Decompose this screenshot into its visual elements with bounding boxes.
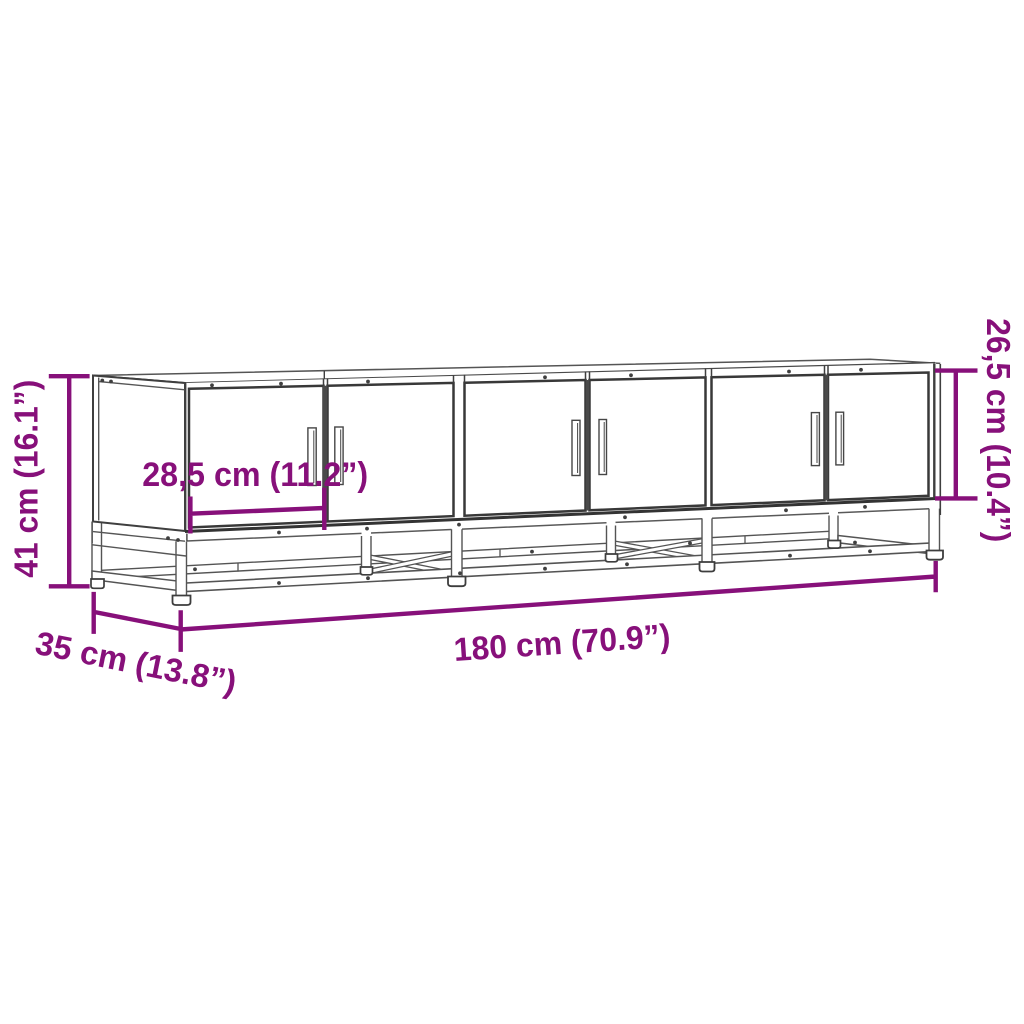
svg-text:41 cm (16.1”): 41 cm (16.1”) — [8, 380, 45, 578]
svg-text:26,5 cm (10.4”): 26,5 cm (10.4”) — [980, 318, 1017, 542]
svg-text:28,5 cm (11.2”): 28,5 cm (11.2”) — [142, 456, 368, 494]
